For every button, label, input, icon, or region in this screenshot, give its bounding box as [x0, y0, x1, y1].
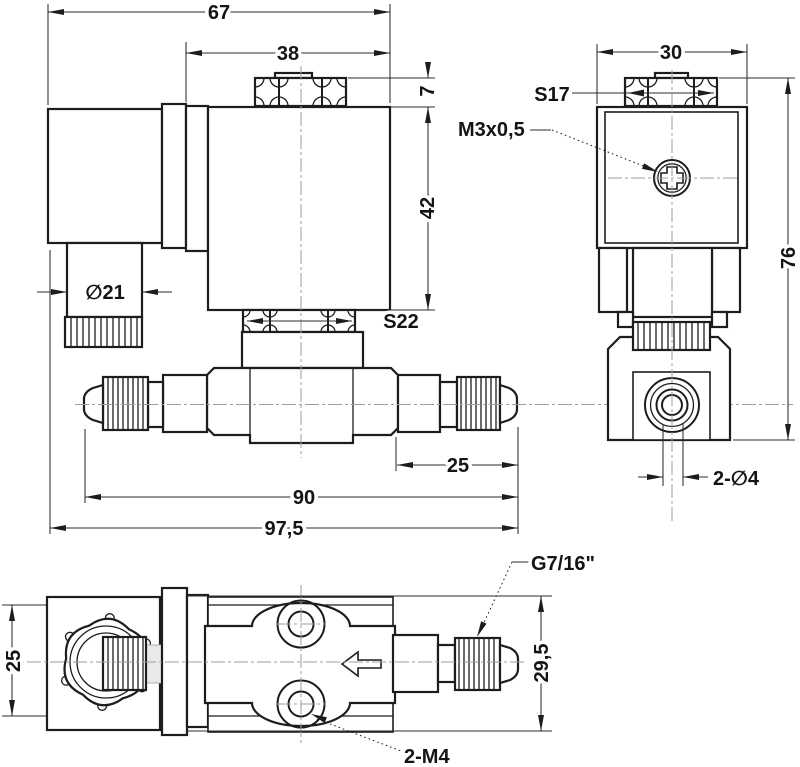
connector-neck: [67, 243, 142, 317]
bottom-collar: [393, 635, 438, 692]
valve-body-block: [207, 368, 398, 443]
dim-label-front-width: 30: [660, 42, 682, 64]
solenoid-valve-drawing: 67 38 7 42 ∅21 S22 25 90 97,5: [0, 0, 800, 767]
left-port-cylinder: [163, 375, 207, 432]
dim-label-coil-height: 42: [417, 197, 439, 219]
dim-label-2m4: 2-M4: [404, 746, 450, 767]
connector-housing: [48, 109, 162, 243]
bottom-port-thread: [455, 638, 500, 690]
bottom-port-step: [438, 645, 455, 682]
gland-knurl-cylinder: [103, 637, 146, 690]
left-step-tab: [618, 312, 633, 327]
dim-label-overall-length: 97,5: [265, 518, 304, 540]
right-flange-leg: [712, 248, 740, 312]
adapter-plate-inner: [186, 106, 208, 251]
dim-label-coil-depth: 25: [3, 650, 25, 672]
dim-label-lock-nut: S22: [383, 311, 419, 333]
dim-label-coil-width: 38: [277, 43, 299, 65]
coil-body: [208, 107, 390, 310]
dim-label-nut-height: 7: [417, 85, 439, 96]
dim-label-m3: M3x0,5: [458, 119, 525, 141]
left-flange-leg: [599, 248, 627, 312]
adapter-plate-outer: [162, 104, 186, 248]
bottom-port-nose: [500, 645, 518, 683]
dim-label-connector-diameter: ∅21: [85, 282, 124, 304]
dim-label-2d4: 2-∅4: [713, 468, 760, 490]
dim-label-s17: S17: [534, 84, 570, 106]
bonnet: [242, 332, 363, 368]
right-port-thread: [457, 377, 500, 430]
right-step-tab: [712, 312, 727, 327]
technical-drawing-canvas: 67 38 7 42 ∅21 S22 25 90 97,5: [0, 0, 800, 767]
left-port-thread: [103, 377, 148, 430]
dim-label-overall-width: 67: [208, 2, 230, 24]
dim-label-height-76: 76: [778, 247, 800, 269]
right-port-cylinder: [398, 375, 440, 432]
dim-label-g716: G7/16": [531, 553, 595, 575]
dim-label-fitting-length: 25: [447, 455, 469, 477]
dim-label-29-5: 29,5: [531, 644, 553, 683]
dim-label-body-length: 90: [293, 487, 315, 509]
